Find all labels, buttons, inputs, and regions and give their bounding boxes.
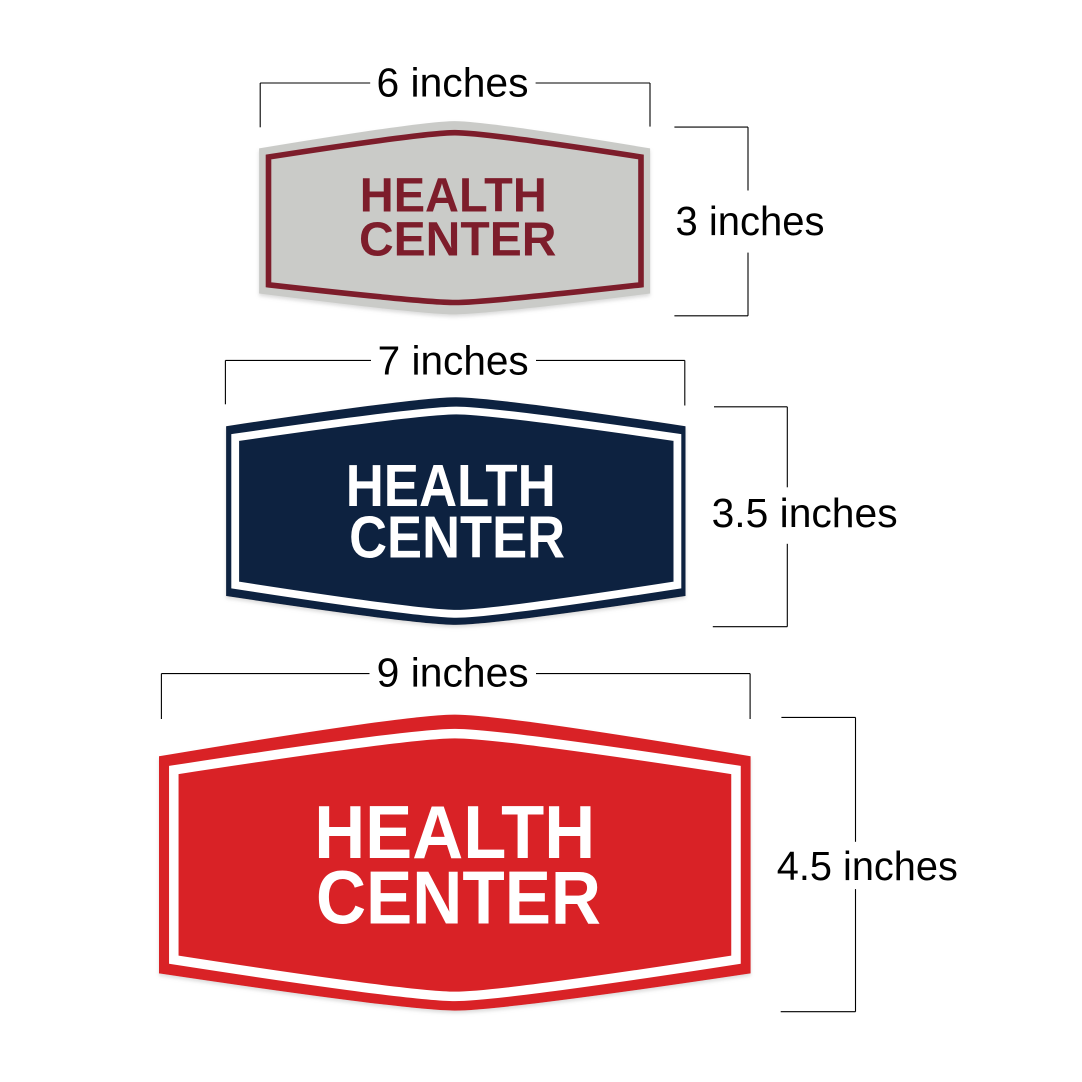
svg-text:7 inches: 7 inches	[378, 338, 529, 384]
svg-text:3 inches: 3 inches	[676, 198, 825, 244]
svg-text:CENTER: CENTER	[349, 503, 565, 570]
svg-text:9 inches: 9 inches	[377, 649, 529, 695]
svg-text:CENTER: CENTER	[316, 856, 601, 940]
svg-text:6 inches: 6 inches	[377, 60, 529, 106]
svg-text:3.5 inches: 3.5 inches	[712, 490, 898, 536]
svg-text:4.5 inches: 4.5 inches	[777, 843, 958, 889]
svg-text:CENTER: CENTER	[359, 213, 557, 266]
